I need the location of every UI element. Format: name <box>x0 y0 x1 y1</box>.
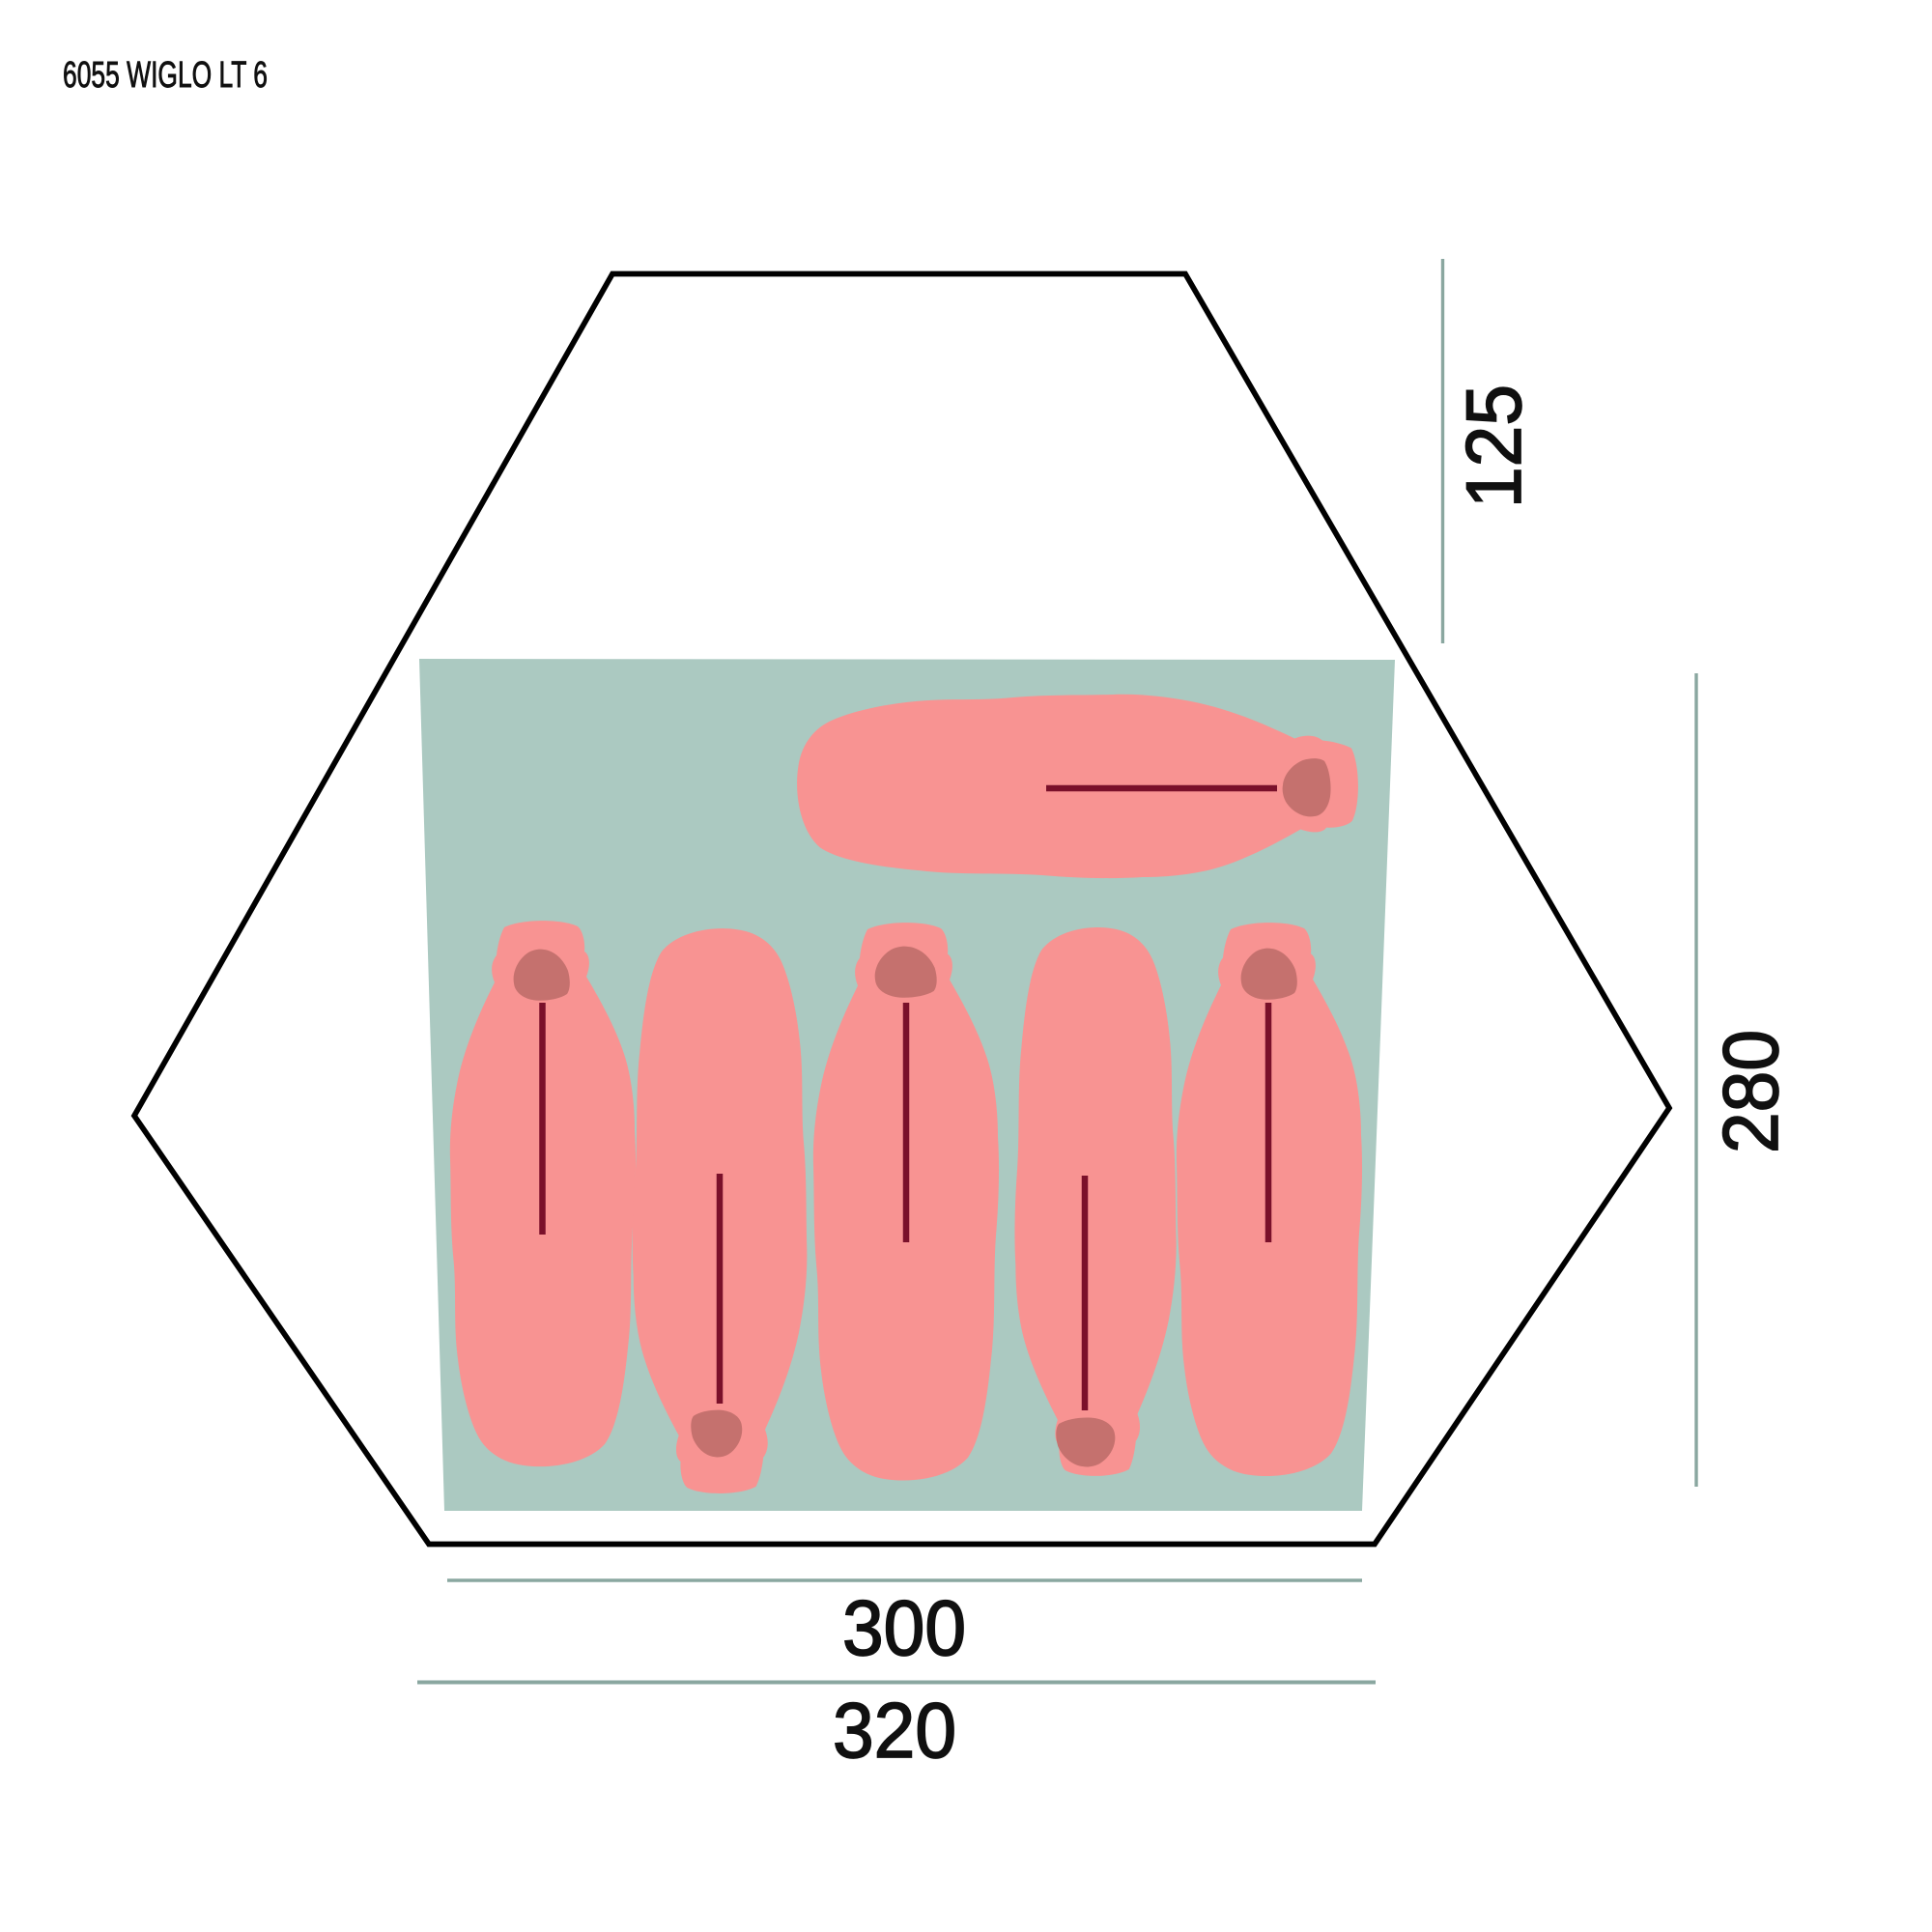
svg-text:280: 280 <box>1708 1030 1795 1153</box>
svg-text:300: 300 <box>842 1585 966 1672</box>
svg-text:320: 320 <box>833 1688 956 1775</box>
svg-text:125: 125 <box>1451 384 1538 508</box>
svg-text:6055 WIGLO LT 6: 6055 WIGLO LT 6 <box>63 55 268 96</box>
